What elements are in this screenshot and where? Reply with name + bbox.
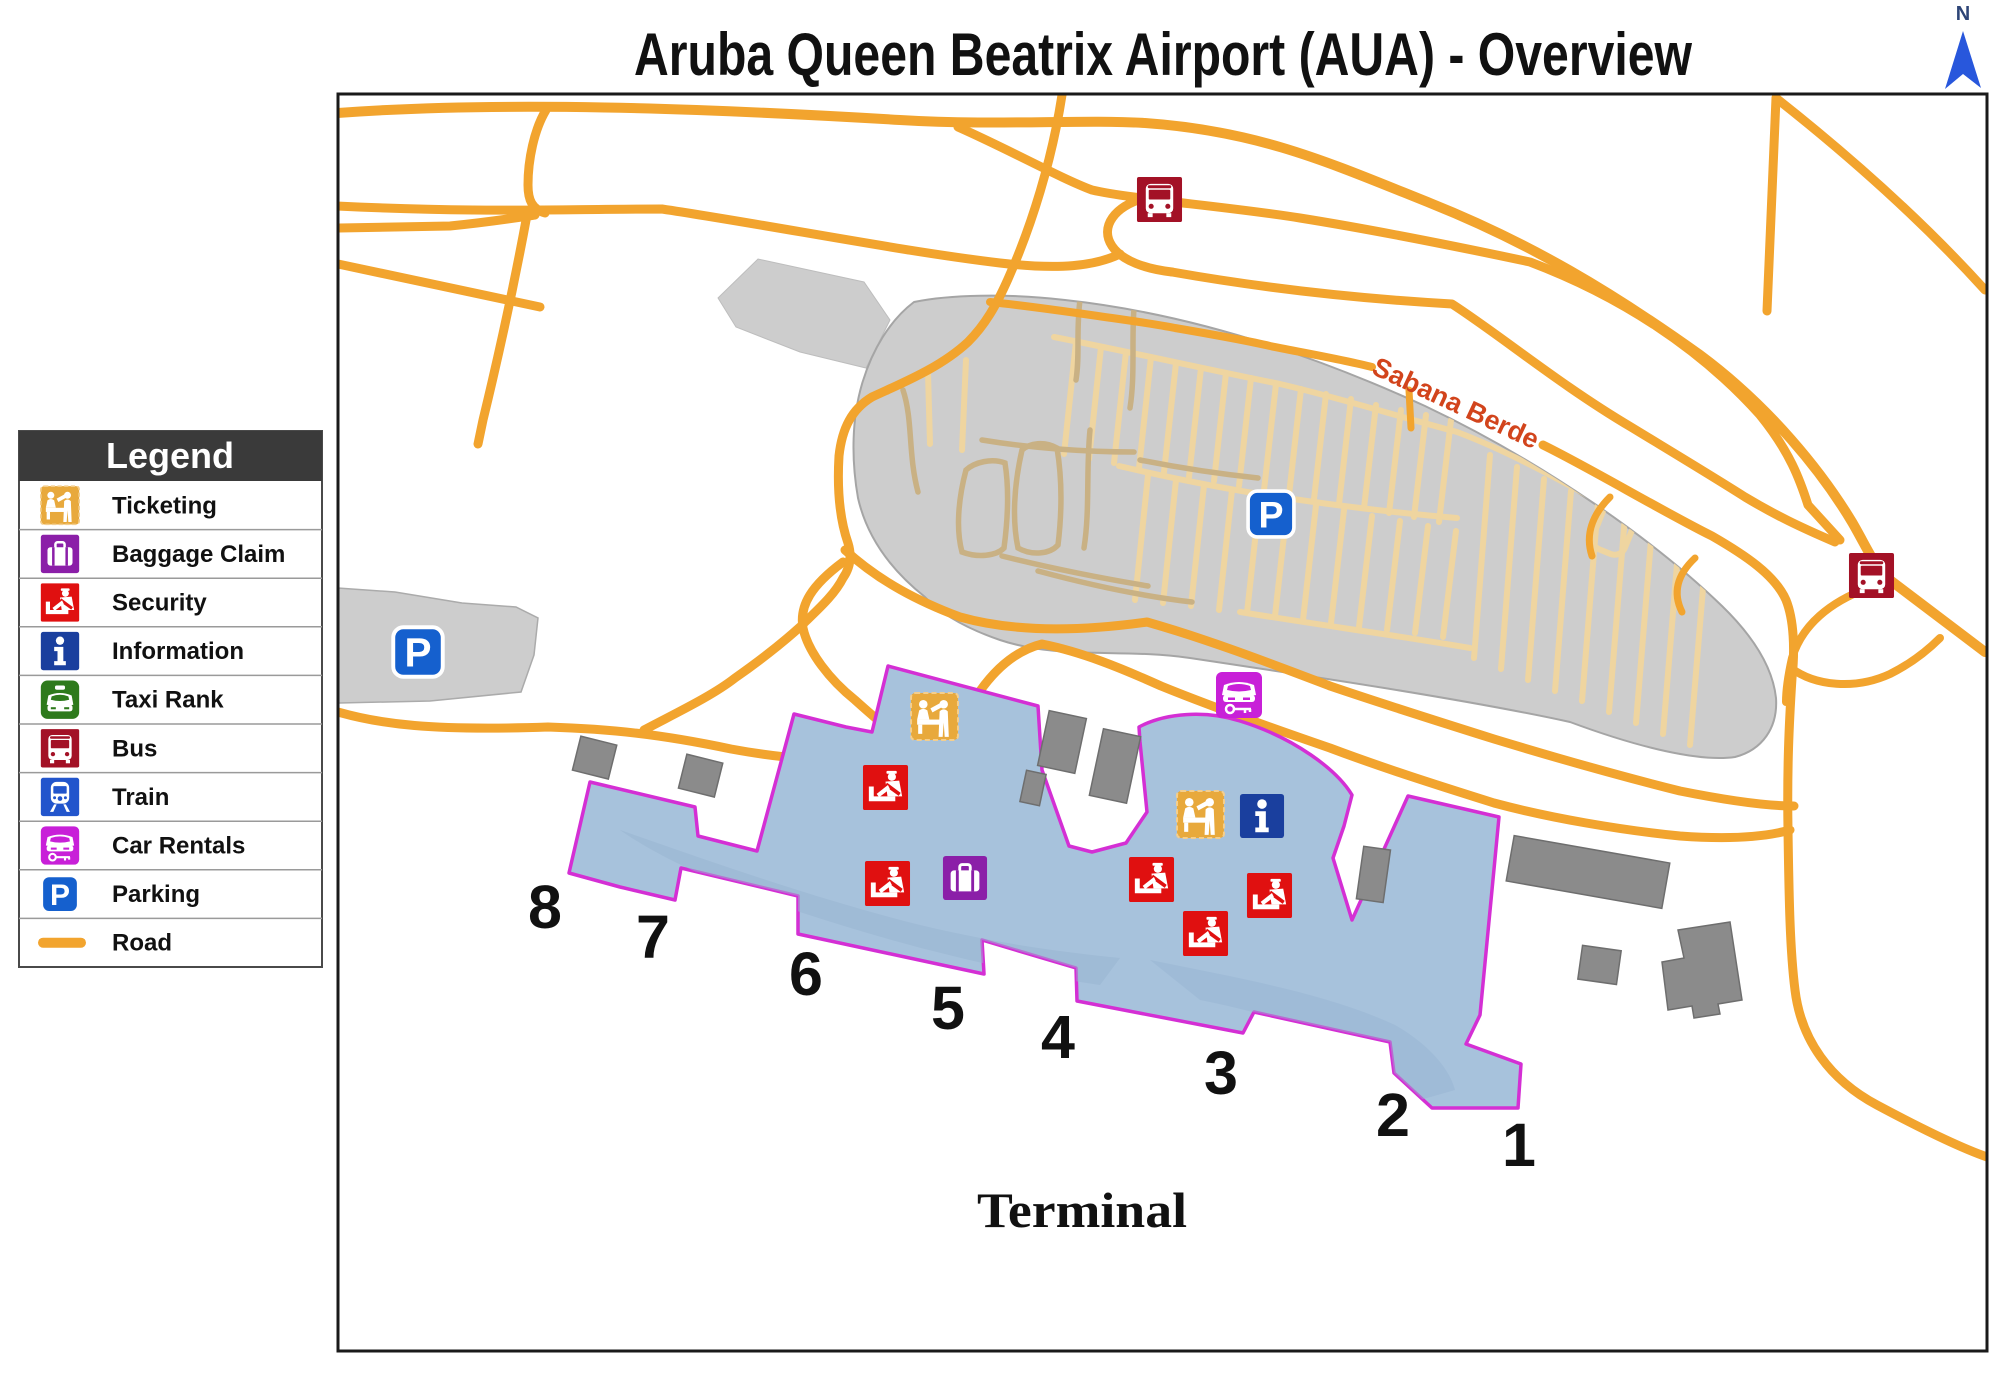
svg-text:N: N xyxy=(1956,3,1970,25)
svg-text:Taxi Rank: Taxi Rank xyxy=(112,687,224,714)
svg-text:Terminal: Terminal xyxy=(977,1182,1187,1238)
svg-text:Legend: Legend xyxy=(106,435,234,476)
svg-text:8: 8 xyxy=(528,873,562,941)
svg-text:3: 3 xyxy=(1204,1039,1238,1107)
svg-text:Aruba Queen Beatrix Airport (A: Aruba Queen Beatrix Airport (AUA) - Over… xyxy=(634,21,1692,88)
svg-text:Bus: Bus xyxy=(112,735,157,762)
svg-text:Parking: Parking xyxy=(112,881,200,908)
svg-text:Security: Security xyxy=(112,590,207,617)
svg-text:Train: Train xyxy=(112,784,169,811)
svg-text:Baggage Claim: Baggage Claim xyxy=(112,541,285,568)
svg-text:Car Rentals: Car Rentals xyxy=(112,833,245,860)
svg-text:6: 6 xyxy=(789,940,823,1008)
svg-text:1: 1 xyxy=(1502,1111,1536,1179)
svg-text:2: 2 xyxy=(1376,1081,1410,1149)
svg-text:4: 4 xyxy=(1041,1003,1075,1071)
svg-text:Road: Road xyxy=(112,930,172,957)
svg-text:7: 7 xyxy=(636,903,670,971)
svg-text:5: 5 xyxy=(931,974,965,1042)
svg-text:Ticketing: Ticketing xyxy=(112,492,217,519)
svg-text:Information: Information xyxy=(112,638,244,665)
